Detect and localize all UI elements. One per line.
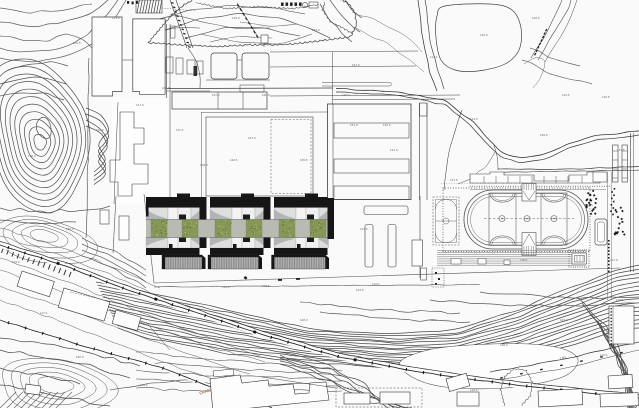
svg-text:126.0: 126.0: [532, 16, 540, 20]
svg-text:198.0: 198.0: [500, 343, 508, 347]
svg-text:167.5: 167.5: [352, 63, 360, 67]
svg-text:197.0: 197.0: [212, 93, 220, 97]
svg-text:199.5: 199.5: [540, 133, 548, 137]
svg-text:151.0: 151.0: [350, 123, 358, 127]
svg-text:123.5: 123.5: [617, 148, 625, 152]
svg-text:164.5: 164.5: [562, 93, 570, 97]
svg-text:136.0: 136.0: [480, 33, 488, 37]
svg-text:108.0: 108.0: [162, 86, 170, 90]
svg-text:182.0: 182.0: [76, 355, 84, 359]
svg-text:113.0: 113.0: [372, 282, 380, 286]
svg-text:121.0: 121.0: [112, 16, 120, 20]
svg-text:115.0: 115.0: [430, 318, 438, 322]
svg-text:108.0: 108.0: [200, 163, 208, 167]
svg-text:191.5: 191.5: [421, 98, 429, 102]
svg-text:133.5: 133.5: [383, 123, 391, 127]
svg-text:118.0: 118.0: [520, 258, 528, 262]
svg-text:170.0: 170.0: [28, 154, 36, 158]
svg-text:147.0: 147.0: [136, 103, 144, 107]
svg-text:193.0: 193.0: [560, 318, 568, 322]
svg-text:109.5: 109.5: [73, 41, 81, 45]
svg-text:130.0: 130.0: [342, 93, 350, 97]
svg-text:103.0: 103.0: [12, 260, 20, 264]
svg-text:178.5: 178.5: [262, 284, 270, 288]
svg-text:138.0: 138.0: [300, 318, 308, 322]
svg-text:143.5: 143.5: [470, 117, 478, 121]
svg-text:146.5: 146.5: [222, 285, 230, 289]
svg-text:110.5: 110.5: [230, 158, 238, 162]
svg-text:110.0: 110.0: [600, 353, 608, 357]
svg-text:150.0: 150.0: [262, 93, 270, 97]
svg-text:147.0: 147.0: [610, 258, 618, 262]
svg-text:137.5: 137.5: [450, 178, 458, 182]
svg-text:178.0: 178.0: [140, 383, 148, 387]
svg-text:165.5: 165.5: [300, 158, 308, 162]
svg-text:124.5: 124.5: [356, 288, 364, 292]
svg-text:193.0: 193.0: [312, 28, 320, 32]
svg-text:136.0: 136.0: [232, 16, 240, 20]
svg-text:117.0: 117.0: [40, 311, 48, 315]
svg-text:182.5: 182.5: [585, 203, 593, 207]
svg-text:154.0: 154.0: [66, 227, 74, 231]
svg-text:134.5: 134.5: [360, 227, 368, 231]
svg-text:146.5: 146.5: [602, 95, 610, 99]
svg-text:113.0: 113.0: [430, 55, 438, 59]
svg-text:148.5: 148.5: [470, 388, 478, 392]
svg-text:110.5: 110.5: [616, 298, 624, 302]
svg-text:117.0: 117.0: [176, 128, 184, 132]
svg-text:131.0: 131.0: [390, 148, 398, 152]
svg-text:126.0: 126.0: [96, 128, 104, 132]
svg-text:167.0: 167.0: [248, 136, 256, 140]
